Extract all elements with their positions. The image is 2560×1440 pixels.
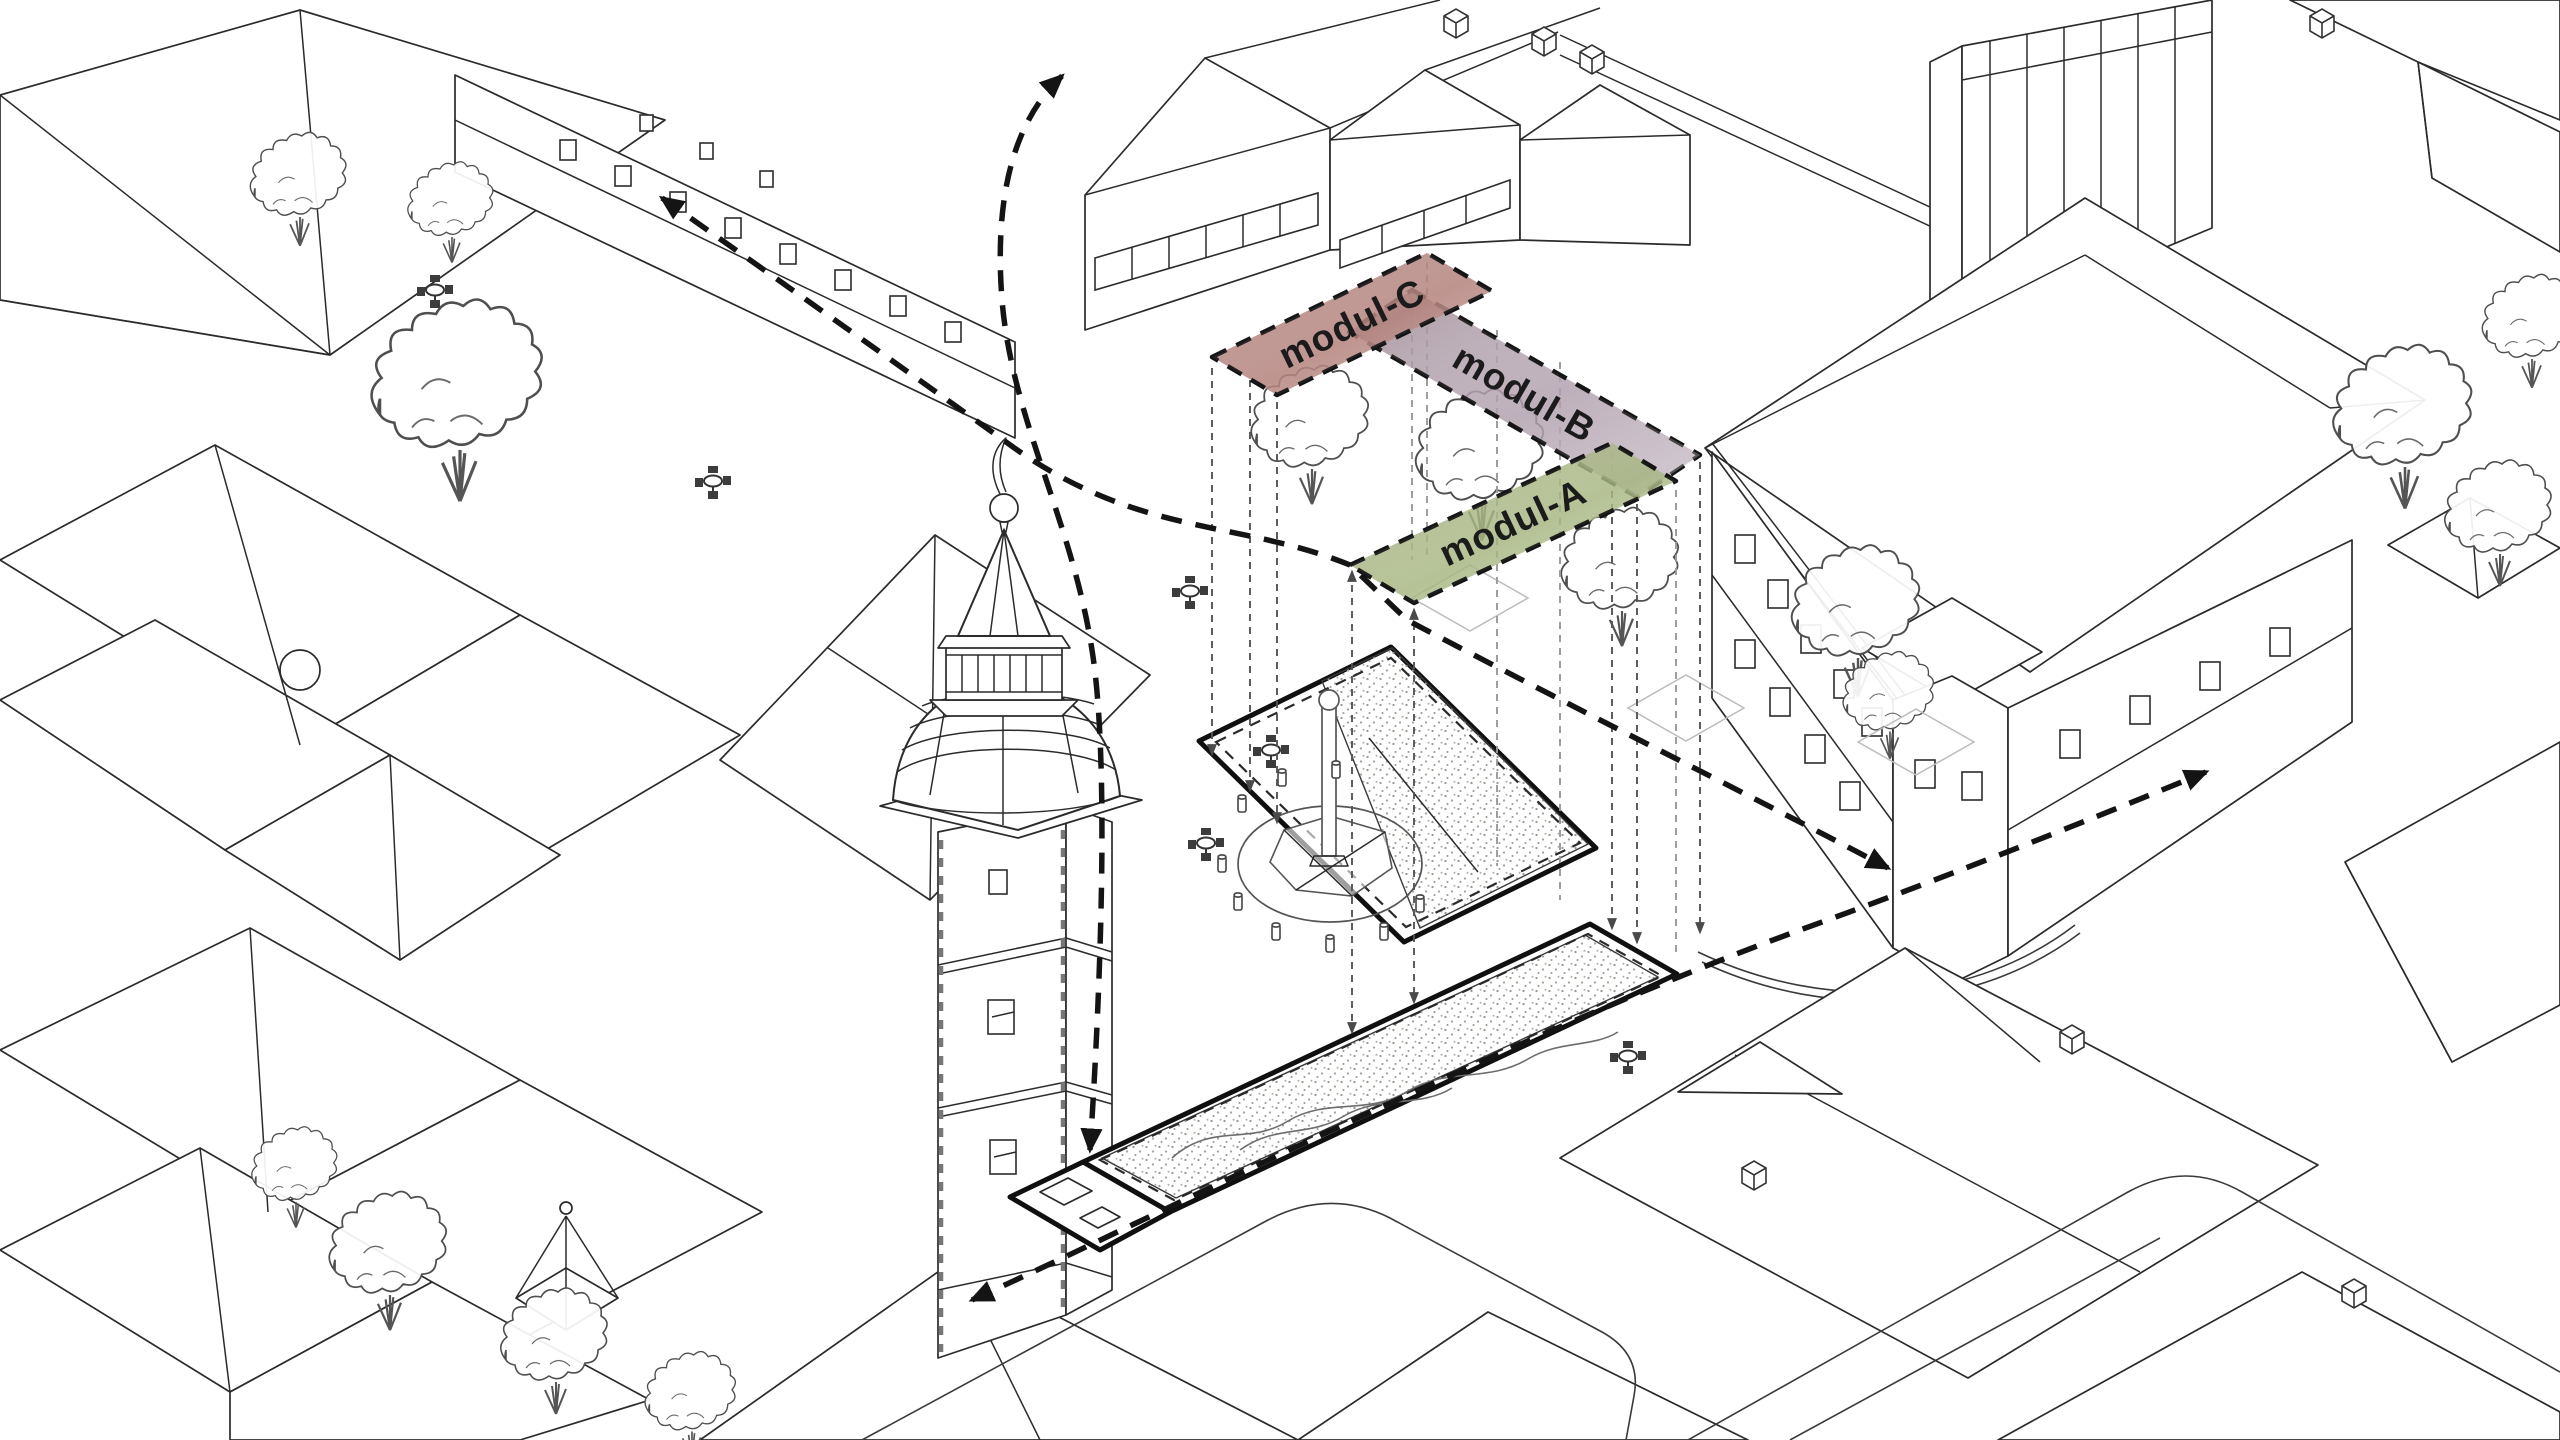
cafe-table-icon [1172, 576, 1208, 609]
spire-crescent [993, 438, 1006, 494]
tree-icon [2482, 274, 2560, 387]
cafe-table-icon [1610, 1041, 1646, 1074]
fountain-column [1322, 706, 1336, 856]
upper-plaza-plot [1199, 647, 1596, 942]
diagram-canvas: modul-B modul-C modul-A [0, 0, 2560, 1440]
axonometric-town-square-diagram: modul-B modul-C modul-A [0, 0, 2560, 1440]
bottom-center-roofs [700, 1262, 1748, 1440]
bottom-left-roof-cluster [0, 928, 762, 1440]
tree-icon [372, 300, 542, 502]
tower-lantern [930, 636, 1078, 716]
spire-ball [990, 494, 1018, 522]
cafe-table-icon [695, 466, 731, 499]
top-right-corner-roofs [2290, 0, 2560, 252]
